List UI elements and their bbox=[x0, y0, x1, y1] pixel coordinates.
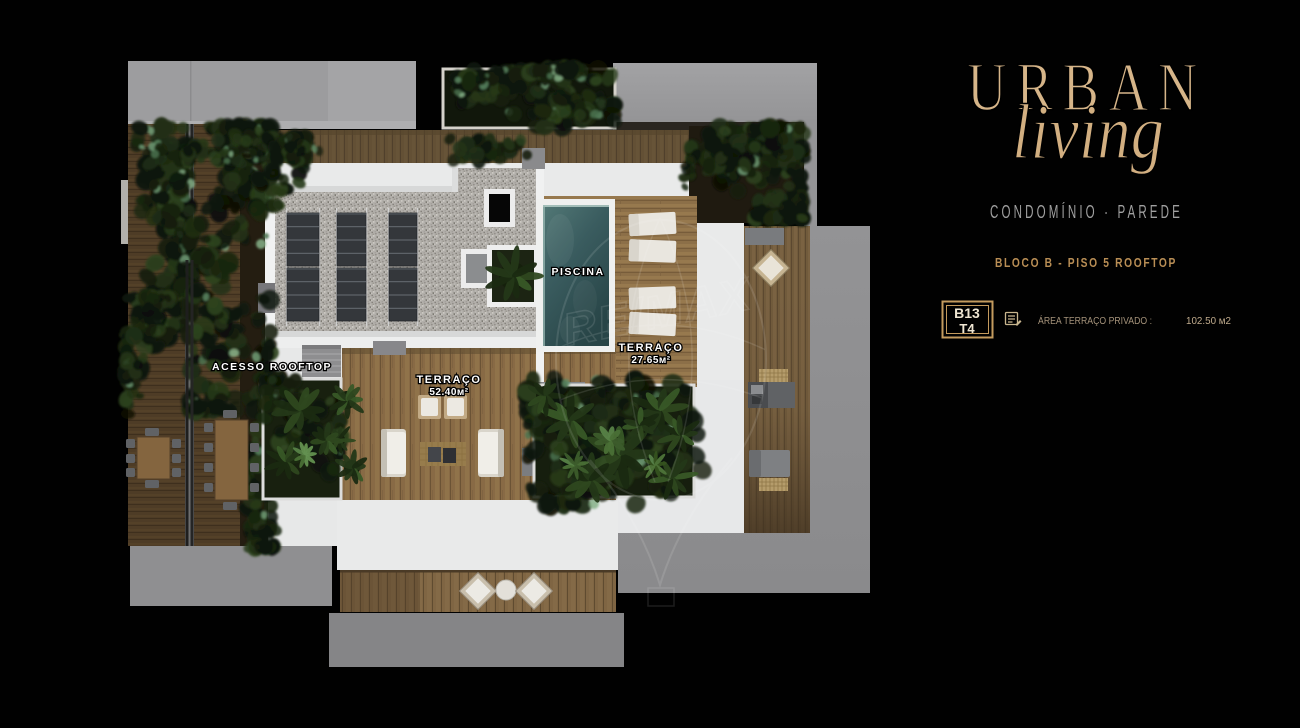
svg-text:27.65м²: 27.65м² bbox=[631, 355, 670, 366]
svg-text:living: living bbox=[1012, 88, 1164, 175]
svg-text:BLOCO B - PISO 5 ROOFTOP: BLOCO B - PISO 5 ROOFTOP bbox=[995, 256, 1177, 270]
svg-text:TERRAÇO: TERRAÇO bbox=[619, 342, 684, 354]
svg-text:102.50 м2: 102.50 м2 bbox=[1186, 315, 1231, 327]
svg-text:ÁREA TERRAÇO PRIVADO :: ÁREA TERRAÇO PRIVADO : bbox=[1038, 314, 1152, 327]
svg-text:52.40м²: 52.40м² bbox=[429, 387, 468, 398]
svg-text:TERRAÇO: TERRAÇO bbox=[417, 374, 482, 386]
svg-text:T4: T4 bbox=[959, 321, 975, 336]
svg-text:ACESSO ROOFTOP: ACESSO ROOFTOP bbox=[212, 361, 332, 373]
svg-text:CONDOMÍNIO · PAREDE: CONDOMÍNIO · PAREDE bbox=[990, 201, 1183, 222]
svg-text:PISCINA: PISCINA bbox=[551, 266, 604, 278]
svg-text:B13: B13 bbox=[954, 305, 980, 321]
